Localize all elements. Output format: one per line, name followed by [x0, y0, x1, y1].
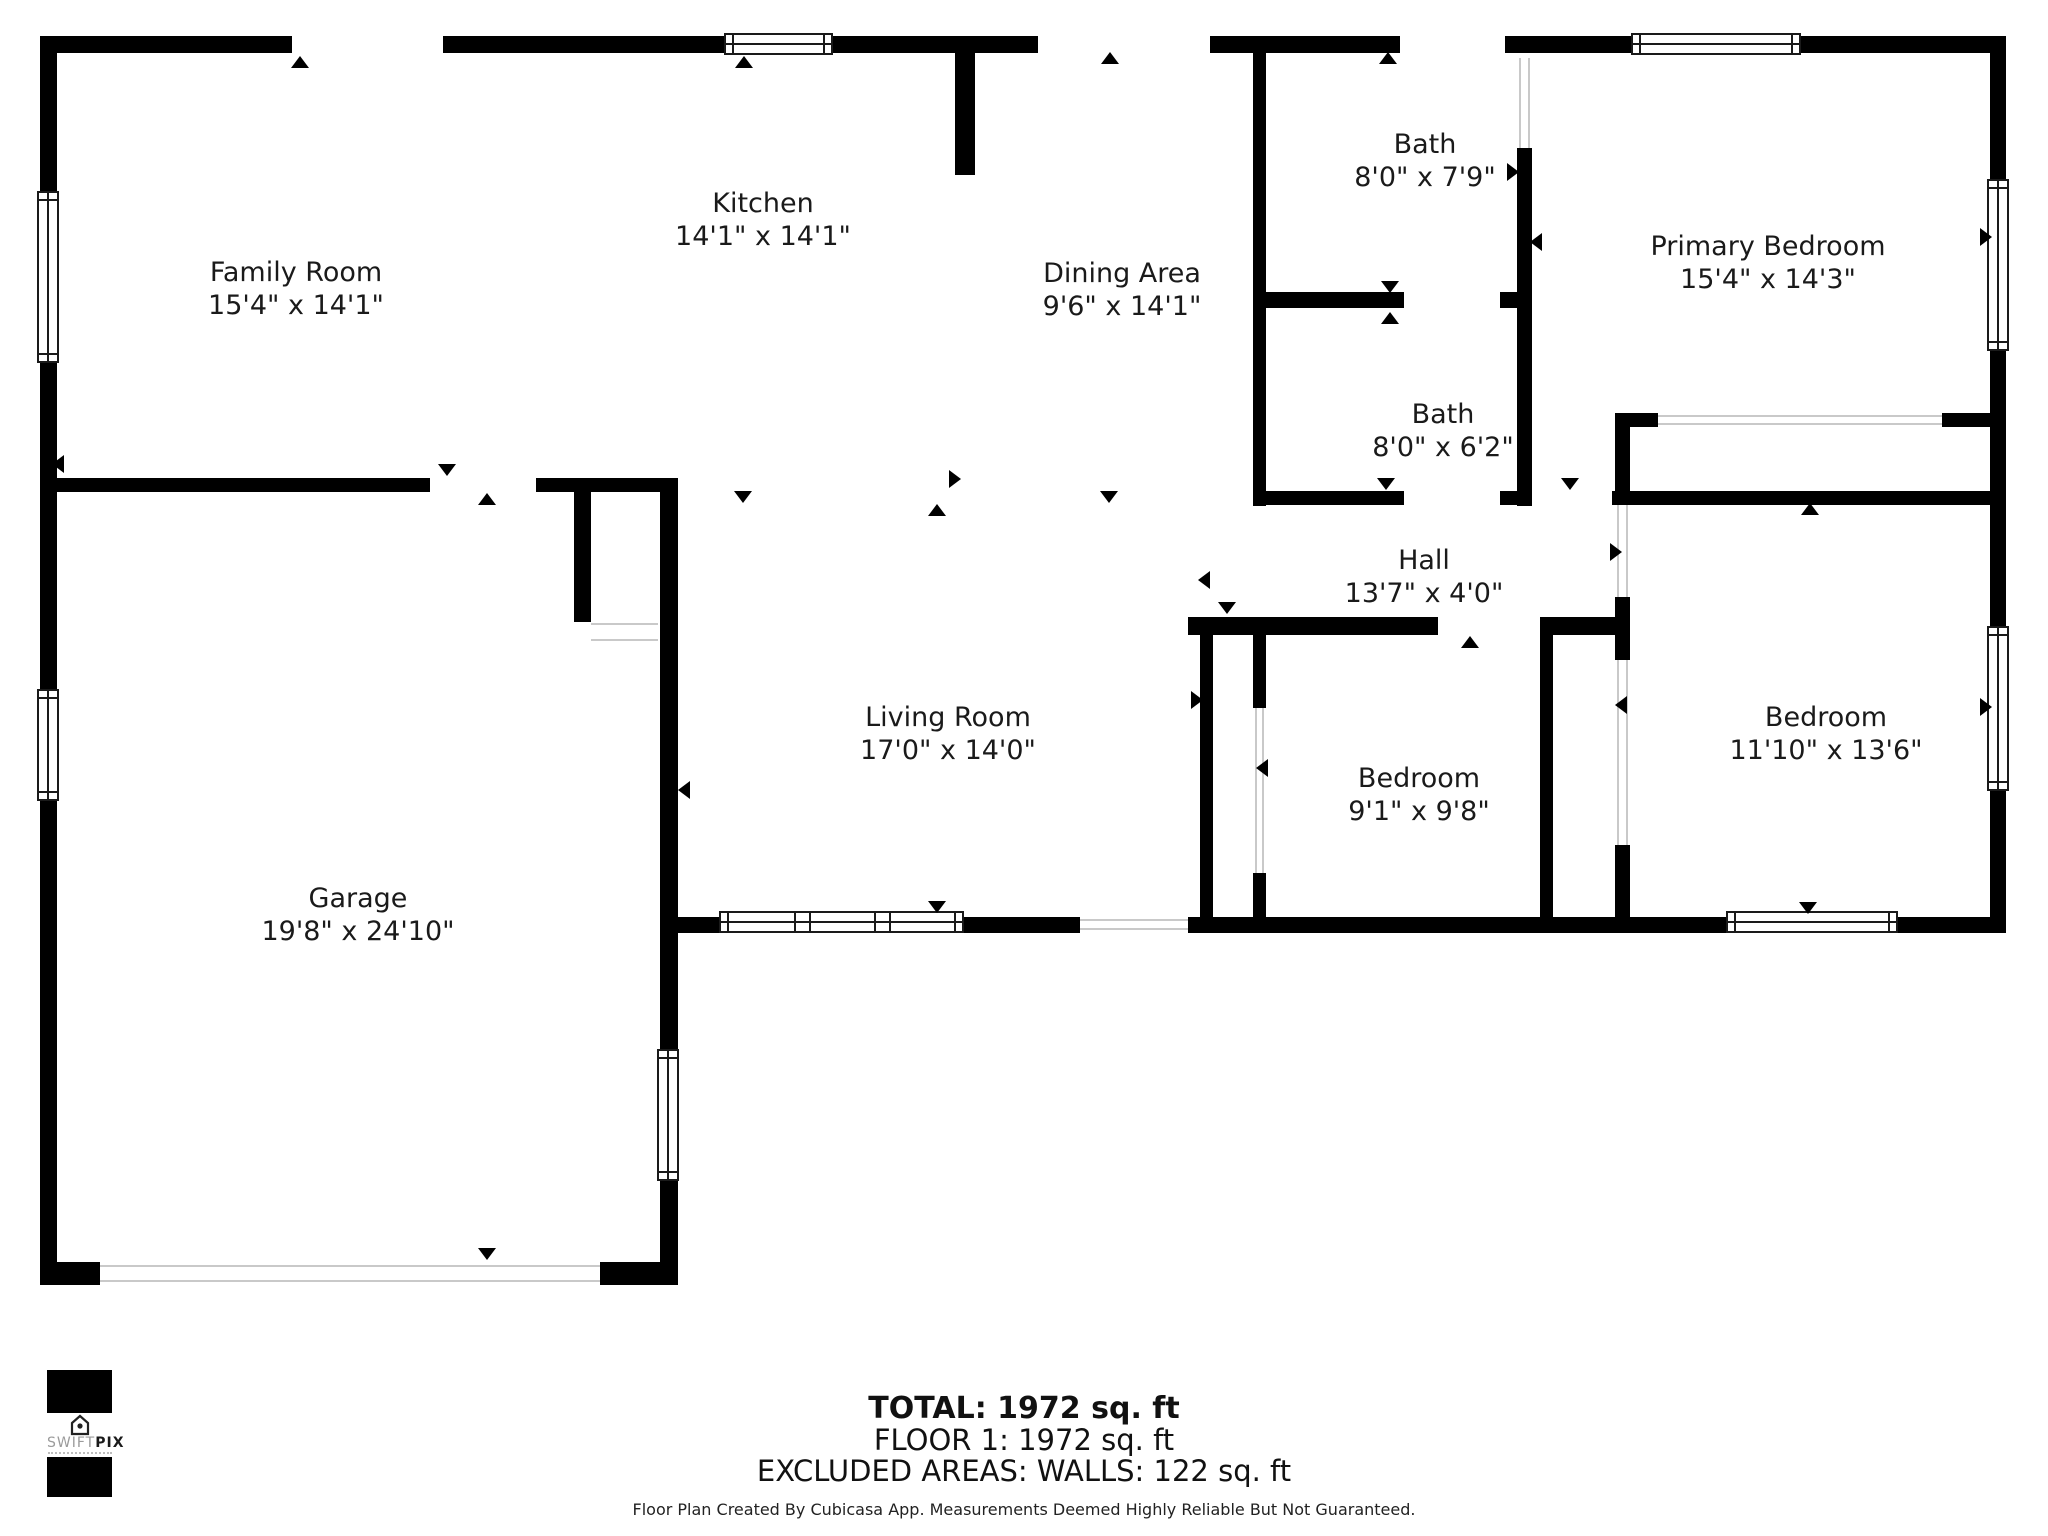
floor-plan-page: Family Room15'4" x 14'1" Kitchen14'1" x … [0, 0, 2048, 1536]
room-name: Bath [1372, 398, 1514, 431]
room-name: Primary Bedroom [1650, 230, 1885, 263]
room-name: Family Room [208, 256, 384, 289]
room-name: Bath [1354, 128, 1496, 161]
door-marker-icon [949, 470, 961, 488]
door-marker-icon [1100, 491, 1118, 503]
room-name: Bedroom [1348, 762, 1490, 795]
door-marker-icon [1610, 543, 1622, 561]
door-marker-icon [1377, 478, 1395, 490]
door-marker-icon [1101, 52, 1119, 64]
room-dims: 17'0" x 14'0" [860, 734, 1036, 767]
door-marker-icon [1198, 571, 1210, 589]
door-marker-icon [291, 56, 309, 68]
door-marker-icon [438, 464, 456, 476]
room-label-bath-lower: Bath8'0" x 6'2" [1372, 398, 1514, 464]
door-marker-icon [734, 491, 752, 503]
room-name: Bedroom [1729, 701, 1922, 734]
room-dims: 15'4" x 14'1" [208, 289, 384, 322]
floor-area-text: FLOOR 1: 1972 sq. ft [0, 1425, 2048, 1456]
room-label-kitchen: Kitchen14'1" x 14'1" [675, 187, 851, 253]
room-name: Living Room [860, 701, 1036, 734]
room-name: Dining Area [1043, 257, 1202, 290]
room-label-bath-upper: Bath8'0" x 7'9" [1354, 128, 1496, 194]
room-label-bedroom-right: Bedroom11'10" x 13'6" [1729, 701, 1922, 767]
door-marker-icon [1379, 52, 1397, 64]
room-name: Kitchen [675, 187, 851, 220]
door-marker-icon [1461, 636, 1479, 648]
room-dims: 9'6" x 14'1" [1043, 290, 1202, 323]
room-dims: 9'1" x 9'8" [1348, 795, 1490, 828]
room-label-family-room: Family Room15'4" x 14'1" [208, 256, 384, 322]
room-dims: 11'10" x 13'6" [1729, 734, 1922, 767]
excluded-area-text: EXCLUDED AREAS: WALLS: 122 sq. ft [0, 1456, 2048, 1487]
disclaimer-text: Floor Plan Created By Cubicasa App. Meas… [0, 1501, 2048, 1519]
room-label-living-room: Living Room17'0" x 14'0" [860, 701, 1036, 767]
door-marker-icon [1381, 312, 1399, 324]
room-label-garage: Garage19'8" x 24'10" [261, 882, 454, 948]
room-dims: 13'7" x 4'0" [1345, 577, 1504, 610]
room-dims: 14'1" x 14'1" [675, 220, 851, 253]
room-label-primary-bedroom: Primary Bedroom15'4" x 14'3" [1650, 230, 1885, 296]
room-name: Garage [261, 882, 454, 915]
room-dims: 8'0" x 6'2" [1372, 431, 1514, 464]
room-label-dining-area: Dining Area9'6" x 14'1" [1043, 257, 1202, 323]
door-marker-icon [1218, 602, 1236, 614]
door-marker-icon [1561, 478, 1579, 490]
door-marker-icon [735, 56, 753, 68]
windows [38, 34, 2008, 1180]
door-marker-icon [478, 493, 496, 505]
room-label-bedroom-small: Bedroom9'1" x 9'8" [1348, 762, 1490, 828]
room-name: Hall [1345, 544, 1504, 577]
room-label-hall: Hall13'7" x 4'0" [1345, 544, 1504, 610]
door-marker-icon [1381, 281, 1399, 293]
footer: TOTAL: 1972 sq. ft FLOOR 1: 1972 sq. ft … [0, 1393, 2048, 1519]
door-marker-icon [478, 1248, 496, 1260]
door-marker-icon [928, 504, 946, 516]
room-dims: 15'4" x 14'3" [1650, 263, 1885, 296]
door-marker-icon [1615, 696, 1627, 714]
total-area-text: TOTAL: 1972 sq. ft [0, 1393, 2048, 1425]
room-dims: 19'8" x 24'10" [261, 915, 454, 948]
room-dims: 8'0" x 7'9" [1354, 161, 1496, 194]
door-marker-icon [678, 781, 690, 799]
walls [40, 36, 2006, 1285]
